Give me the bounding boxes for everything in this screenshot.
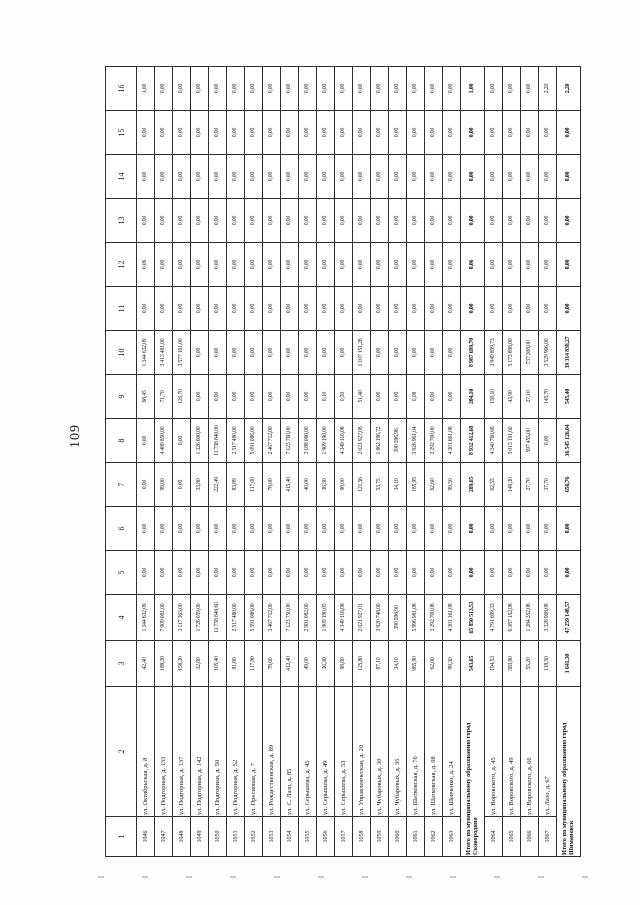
row-id-cell: 1057 — [335, 817, 353, 857]
address-cell: ул. Шатковская, д. 76 — [407, 687, 425, 817]
table-row: 1065ул. Воровского, д. 49383,906 387 152… — [503, 67, 521, 857]
total-label-cell: Итого по муниципальному образованию горо… — [461, 687, 485, 857]
address-cell: ул. Подгорная, д. 50 — [209, 687, 227, 817]
row-id-cell: 1054 — [281, 817, 299, 857]
value-cell: 0,00 — [263, 199, 281, 243]
value-cell: 0,00 — [227, 331, 245, 375]
table-row: 1052ул. Пресновая, д. 7117,805 591 086,0… — [245, 67, 263, 857]
value-cell: 0,00 — [227, 111, 245, 155]
value-cell: 0,00 — [389, 111, 407, 155]
value-cell: 0,00 — [137, 419, 155, 463]
value-cell: 0,00 — [485, 155, 503, 199]
value-cell: 40,00 — [299, 463, 317, 507]
value-cell: 0,00 — [245, 507, 263, 551]
value-cell: 0,00 — [389, 331, 407, 375]
value-cell: 98,00 — [335, 463, 353, 507]
value-cell: 121,56 — [353, 463, 371, 507]
column-number-header: 2 — [106, 687, 137, 817]
value-cell: 0,00 — [317, 67, 335, 111]
value-cell: 105,40 — [209, 641, 227, 687]
value-cell: 0,00 — [245, 375, 263, 419]
value-cell: 0,00 — [281, 243, 299, 287]
column-number-header: 16 — [106, 67, 137, 111]
value-cell: 0,00 — [443, 111, 461, 155]
value-cell: 0,00 — [485, 287, 503, 331]
value-cell: 0,00 — [317, 243, 335, 287]
value-cell: 0,00 — [191, 551, 209, 595]
value-cell: 78,60 — [263, 641, 281, 687]
value-cell: 68,45 — [137, 375, 155, 419]
address-cell: ул. Подгорная, д. 142 — [191, 687, 209, 817]
value-cell: 2 467 712,00 — [263, 419, 281, 463]
value-cell: 0,00 — [209, 67, 227, 111]
value-cell: 0,00 — [155, 551, 173, 595]
value-cell: 150,10 — [485, 375, 503, 419]
value-cell: 0,00 — [425, 375, 443, 419]
value-cell: 0,00 — [227, 375, 245, 419]
address-cell: ул. Управленческая, д. 20 — [353, 687, 371, 817]
value-cell: 0,00 — [137, 199, 155, 243]
page-number: 109 — [68, 424, 84, 448]
value-cell: 0,00 — [503, 507, 521, 551]
value-cell: 3 577 161,00 — [173, 331, 191, 375]
value-cell: 0,00 — [281, 507, 299, 551]
value-cell: 0,00 — [503, 287, 521, 331]
value-cell: 0,00 — [173, 463, 191, 507]
value-cell: 0,00 — [317, 155, 335, 199]
value-cell: 5 591 086,00 — [245, 595, 263, 641]
value-cell: 0,00 — [539, 243, 557, 287]
value-cell: 8 932 412,68 — [461, 419, 485, 463]
value-cell: 0,00 — [407, 111, 425, 155]
value-cell: 0,00 — [191, 111, 209, 155]
value-cell: 0,00 — [521, 155, 539, 199]
value-cell: 3 188 060,00 — [299, 419, 317, 463]
value-cell: 737 308,00 — [521, 331, 539, 375]
value-cell: 0,00 — [263, 155, 281, 199]
value-cell: 43,90 — [503, 375, 521, 419]
value-cell: 32,80 — [191, 641, 209, 687]
value-cell: 0,00 — [245, 67, 263, 111]
row-id-cell: 1056 — [317, 817, 335, 857]
value-cell: 11 758 849,60 — [209, 595, 227, 641]
value-cell: 0,00 — [557, 507, 581, 551]
value-cell: 0,00 — [227, 67, 245, 111]
value-cell: 0,00 — [173, 155, 191, 199]
value-cell: 0,00 — [155, 287, 173, 331]
value-cell: 0,00 — [485, 111, 503, 155]
value-cell: 0,00 — [299, 67, 317, 111]
value-cell: 0,00 — [263, 243, 281, 287]
value-cell: 0,00 — [353, 507, 371, 551]
value-cell: 0,00 — [263, 67, 281, 111]
value-cell: 0,00 — [485, 551, 503, 595]
value-cell: 0,00 — [461, 155, 485, 199]
value-cell: 0,00 — [503, 243, 521, 287]
value-cell: 194,53 — [485, 641, 503, 687]
value-cell: 99,50 — [443, 463, 461, 507]
value-cell: 4 791 699,33 — [485, 595, 503, 641]
value-cell: 0,00 — [389, 375, 407, 419]
value-cell: 3 292 700,08 — [425, 595, 443, 641]
value-cell: 0,00 — [425, 67, 443, 111]
value-cell: 0,00 — [503, 551, 521, 595]
value-cell: 0,00 — [263, 331, 281, 375]
value-cell: 5 996 981,08 — [407, 595, 425, 641]
value-cell: 0,00 — [425, 199, 443, 243]
value-cell: 0,00 — [137, 551, 155, 595]
value-cell: 1 344 632,09 — [137, 595, 155, 641]
row-id-cell: 1064 — [485, 817, 503, 857]
value-cell: 1 909 190,05 — [317, 595, 335, 641]
value-cell: 0,00 — [521, 199, 539, 243]
value-cell: 1,00 — [137, 67, 155, 111]
column-number-header: 8 — [106, 419, 137, 463]
value-cell: 0,00 — [521, 287, 539, 331]
value-cell: 0,00 — [155, 111, 173, 155]
column-number-row: 12345678910111213141516 — [106, 67, 137, 857]
value-cell: 0,00 — [485, 507, 503, 551]
value-cell: 1,00 — [461, 67, 485, 111]
value-cell: 158,30 — [173, 641, 191, 687]
value-cell: 0,00 — [263, 375, 281, 419]
value-cell: 0,00 — [245, 199, 263, 243]
table-row: 1051ул. Подгорная, д. 5281,802 517 480,0… — [227, 67, 245, 857]
address-cell: ул. Серышева, д. 49 — [317, 687, 335, 817]
value-cell: 0,00 — [461, 507, 485, 551]
value-cell: 0,00 — [191, 375, 209, 419]
address-cell: ул. Шевченко, д. 24 — [443, 687, 461, 817]
value-cell: 0,00 — [485, 199, 503, 243]
value-cell: 0,00 — [173, 111, 191, 155]
row-id-cell: 1055 — [299, 817, 317, 857]
value-cell: 62,55 — [485, 463, 503, 507]
value-cell: 65 850 513,53 — [461, 595, 485, 641]
value-cell: 0,00 — [281, 67, 299, 111]
value-cell: 0,00 — [539, 287, 557, 331]
column-number-header: 7 — [106, 463, 137, 507]
value-cell: 189,30 — [155, 641, 173, 687]
value-cell: 0,00 — [539, 155, 557, 199]
value-cell: 0,00 — [335, 243, 353, 287]
value-cell: 0,00 — [227, 243, 245, 287]
value-cell: 3 117 363,00 — [173, 595, 191, 641]
value-cell: 0,00 — [425, 287, 443, 331]
value-cell: 0,00 — [371, 111, 389, 155]
value-cell: 2 517 480,00 — [227, 419, 245, 463]
value-cell: 383,90 — [503, 641, 521, 687]
value-cell: 0,00 — [335, 199, 353, 243]
value-cell: 0,00 — [245, 155, 263, 199]
value-cell: 0,00 — [539, 199, 557, 243]
value-cell: 0,00 — [317, 199, 335, 243]
value-cell: 0,00 — [227, 155, 245, 199]
value-cell: 0,00 — [137, 155, 155, 199]
address-cell: ул. Подгорная, д. 133 — [155, 687, 173, 817]
value-cell: 118,50 — [539, 641, 557, 687]
value-cell: 0,00 — [557, 111, 581, 155]
value-cell: 0,00 — [425, 507, 443, 551]
value-cell: 0,00 — [263, 551, 281, 595]
value-cell: 7 123 760,00 — [281, 419, 299, 463]
value-cell: 0,00 — [371, 243, 389, 287]
value-cell: 390 596,96 — [389, 419, 407, 463]
value-cell: 0,00 — [299, 551, 317, 595]
value-cell: 1 284 352,08 — [521, 595, 539, 641]
column-number-header: 3 — [106, 641, 137, 687]
rotated-table: 12345678910111213141516 1046ул. Октябрьс… — [105, 70, 579, 857]
value-cell: 120,70 — [173, 375, 191, 419]
row-id-cell: 1047 — [155, 817, 173, 857]
table-row: 1057ул. Серышева, д. 5398,804 349 116,08… — [335, 67, 353, 857]
value-cell: 1 862 196,72 — [371, 419, 389, 463]
value-cell: 0,00 — [389, 287, 407, 331]
value-cell: 71,70 — [155, 375, 173, 419]
value-cell: 0,50 — [335, 375, 353, 419]
address-cell: ул. Подгорная, д. 52 — [227, 687, 245, 817]
value-cell: 0,00 — [461, 551, 485, 595]
value-cell: 0,00 — [539, 507, 557, 551]
value-cell: 0,00 — [557, 287, 581, 331]
value-cell: 0,00 — [443, 287, 461, 331]
value-cell: 0,00 — [407, 331, 425, 375]
value-cell: 0,08 — [407, 375, 425, 419]
value-cell: 0,00 — [191, 67, 209, 111]
address-cell: ул. Октябрьская, д. 8 — [137, 687, 155, 817]
value-cell: 62,60 — [425, 463, 443, 507]
value-cell: 222,49 — [209, 463, 227, 507]
value-cell: 6 387 152,08 — [503, 595, 521, 641]
value-cell: 0,00 — [281, 331, 299, 375]
value-cell: 0,00 — [137, 507, 155, 551]
address-cell: ул. Серышева, д. 45 — [299, 687, 317, 817]
value-cell: 0,00 — [371, 331, 389, 375]
value-cell: 0,00 — [281, 111, 299, 155]
value-cell: 2 517 480,00 — [227, 595, 245, 641]
value-cell: 1 641,30 — [557, 641, 581, 687]
total-label-cell: Итого по муниципальному образованию горо… — [557, 687, 581, 857]
value-cell: 55,20 — [521, 641, 539, 687]
row-id-cell: 1049 — [191, 817, 209, 857]
value-cell: 415,40 — [281, 463, 299, 507]
value-cell: 0,00 — [281, 375, 299, 419]
row-id-cell: 1052 — [245, 817, 263, 857]
value-cell: 3 926 961,04 — [407, 419, 425, 463]
value-cell: 0,00 — [209, 199, 227, 243]
row-id-cell: 1061 — [407, 817, 425, 857]
row-id-cell: 1058 — [353, 817, 371, 857]
value-cell: 0,00 — [539, 419, 557, 463]
value-cell: 36,30 — [317, 641, 335, 687]
table-row: 1059ул. Чубаровых, д. 3087,103 920 748,0… — [371, 67, 389, 857]
address-cell: ул. Серышева, д. 53 — [335, 687, 353, 817]
value-cell: 597 455,00 — [521, 419, 539, 463]
value-cell: 62,00 — [425, 641, 443, 687]
value-cell: 42,40 — [137, 641, 155, 687]
value-cell: 0,00 — [299, 287, 317, 331]
value-cell: 0,00 — [209, 243, 227, 287]
value-cell: 2,20 — [539, 67, 557, 111]
value-cell: 2 981 082,00 — [299, 595, 317, 641]
value-cell: 39 314 838,27 — [557, 331, 581, 375]
value-cell: 543,65 — [461, 641, 485, 687]
value-cell: 0,06 — [461, 243, 485, 287]
value-cell: 0,00 — [317, 551, 335, 595]
address-cell: ул. Лазо, д. 67 — [539, 687, 557, 817]
row-id-cell: 1063 — [443, 817, 461, 857]
column-number-header: 11 — [106, 287, 137, 331]
value-cell: 0,00 — [335, 287, 353, 331]
value-cell: 0,00 — [521, 111, 539, 155]
value-cell: 53,75 — [371, 463, 389, 507]
value-cell: 0,00 — [191, 243, 209, 287]
address-cell: ул. Подгорная, д. 137 — [173, 687, 191, 817]
address-cell: ул. Чубаровых, д. 30 — [371, 687, 389, 817]
value-cell: 0,00 — [191, 331, 209, 375]
value-cell: 0,00 — [227, 287, 245, 331]
value-cell: 0,00 — [209, 551, 227, 595]
value-cell: 0,00 — [191, 507, 209, 551]
value-cell: 0,00 — [155, 199, 173, 243]
value-cell: 11 738 840,00 — [209, 419, 227, 463]
value-cell: 0,00 — [317, 111, 335, 155]
value-cell: 0,00 — [155, 155, 173, 199]
value-cell: 3 949 899,73 — [485, 331, 503, 375]
value-cell: 49,00 — [299, 641, 317, 687]
value-cell: 4 301 161,08 — [443, 595, 461, 641]
table-row: 1049ул. Подгорная, д. 14232,801 726 059,… — [191, 67, 209, 857]
row-id-cell: 1046 — [137, 817, 155, 857]
value-cell: 0,00 — [281, 155, 299, 199]
value-cell: 3 920 748,00 — [371, 595, 389, 641]
table-row: 1061ул. Шатковская, д. 76985,905 996 981… — [407, 67, 425, 857]
value-cell: 0,00 — [539, 551, 557, 595]
value-cell: 145,70 — [539, 375, 557, 419]
value-cell: 656,76 — [557, 463, 581, 507]
value-cell: 3 413 481,00 — [155, 331, 173, 375]
header-row: 12345678910111213141516 — [106, 67, 137, 857]
value-cell: 0,00 — [443, 243, 461, 287]
value-cell: 0,00 — [371, 67, 389, 111]
value-cell: 34,10 — [389, 463, 407, 507]
table-row: 1047ул. Подгорная, д. 133189,307 909 081… — [155, 67, 173, 857]
row-id-cell: 1066 — [521, 817, 539, 857]
value-cell: 0,00 — [209, 111, 227, 155]
value-cell: 7 123 750,00 — [281, 595, 299, 641]
value-cell: 87,10 — [371, 641, 389, 687]
value-cell: 47 259 148,57 — [557, 595, 581, 641]
column-number-header: 15 — [106, 111, 137, 155]
table-row: 1056ул. Серышева, д. 4936,301 909 190,05… — [317, 67, 335, 857]
value-cell: 149,30 — [503, 463, 521, 507]
value-cell: 0,00 — [155, 243, 173, 287]
address-cell: ул. С. Лазо, д. 85 — [281, 687, 299, 817]
value-cell: 5 091 086,00 — [245, 419, 263, 463]
row-id-cell: 1051 — [227, 817, 245, 857]
address-cell: ул. Воровского, д. 45 — [485, 687, 503, 817]
value-cell: 185,95 — [407, 463, 425, 507]
row-id-cell: 1059 — [371, 817, 389, 857]
value-cell: 125,80 — [353, 641, 371, 687]
value-cell: 0,00 — [191, 155, 209, 199]
table-row: 1058ул. Управленческая, д. 20125,802 021… — [353, 67, 371, 857]
value-cell: 0,00 — [245, 331, 263, 375]
total-row: Итого по муниципальному образованию горо… — [461, 67, 485, 857]
scanned-page: 109 12345678910111213141516 1046ул. Октя… — [0, 0, 640, 905]
value-cell: 0,00 — [407, 155, 425, 199]
value-cell: 0,00 — [425, 155, 443, 199]
value-cell: 4 349 116,08 — [335, 595, 353, 641]
value-cell: 51,40 — [353, 375, 371, 419]
value-cell: 0,00 — [371, 551, 389, 595]
row-id-cell: 1053 — [263, 817, 281, 857]
value-cell: 0,00 — [245, 287, 263, 331]
value-cell: 0,00 — [353, 111, 371, 155]
value-cell: 0,00 — [371, 507, 389, 551]
value-cell: 0,00 — [191, 287, 209, 331]
column-number-header: 14 — [106, 155, 137, 199]
value-cell: 3 328 908,08 — [539, 595, 557, 641]
value-cell: 0,00 — [443, 507, 461, 551]
value-cell: 8 987 699,70 — [461, 331, 485, 375]
value-cell: 0,00 — [299, 507, 317, 551]
table-row: 1055ул. Серышева, д. 4549,002 981 082,00… — [299, 67, 317, 857]
value-cell: 0,00 — [425, 331, 443, 375]
value-cell: 0,00 — [521, 507, 539, 551]
value-cell: 0,00 — [443, 155, 461, 199]
value-cell: 0,00 — [443, 67, 461, 111]
value-cell: 0,00 — [299, 111, 317, 155]
table-row: 1046ул. Октябрьская, д. 842,401 344 632,… — [137, 67, 155, 857]
value-cell: 0,00 — [245, 243, 263, 287]
address-cell: ул. Рождественская, д. 89 — [263, 687, 281, 817]
row-id-cell: 1060 — [389, 817, 407, 857]
value-cell: 0,00 — [389, 243, 407, 287]
value-cell: 0,00 — [389, 551, 407, 595]
value-cell: 0,00 — [407, 67, 425, 111]
table-row: 1053ул. Рождественская, д. 8978,603 467 … — [263, 67, 281, 857]
value-cell: 0,00 — [317, 287, 335, 331]
value-cell: 0,00 — [335, 111, 353, 155]
value-cell: 0,00 — [485, 243, 503, 287]
value-cell: 390 596,90 — [389, 595, 407, 641]
value-cell: 0,00 — [503, 67, 521, 111]
value-cell: 0,00 — [137, 111, 155, 155]
value-cell: 78,00 — [263, 463, 281, 507]
column-number-header: 9 — [106, 375, 137, 419]
value-cell: 34,10 — [389, 641, 407, 687]
value-cell: 27,10 — [521, 375, 539, 419]
value-cell: 99,00 — [155, 463, 173, 507]
value-cell: 0,00 — [353, 243, 371, 287]
value-cell: 0,00 — [299, 375, 317, 419]
value-cell: 0,00 — [191, 199, 209, 243]
value-cell: 0,00 — [557, 551, 581, 595]
address-cell: ул. Воровского, д. 66 — [521, 687, 539, 817]
value-cell: 0,00 — [173, 551, 191, 595]
value-cell: 0,00 — [245, 551, 263, 595]
table-row: 1062ул. Шатковская, д. 9862,003 292 700,… — [425, 67, 443, 857]
column-number-header: 5 — [106, 551, 137, 595]
value-cell: 4 349 116,08 — [335, 419, 353, 463]
column-number-header: 13 — [106, 199, 137, 243]
table-row: 1054ул. С. Лазо, д. 85412,407 123 750,00… — [281, 67, 299, 857]
value-cell: 0,00 — [335, 551, 353, 595]
value-cell: 4 489 850,00 — [155, 419, 173, 463]
value-cell: 412,40 — [281, 641, 299, 687]
value-cell: 0,00 — [521, 243, 539, 287]
value-cell: 99,30 — [443, 641, 461, 687]
